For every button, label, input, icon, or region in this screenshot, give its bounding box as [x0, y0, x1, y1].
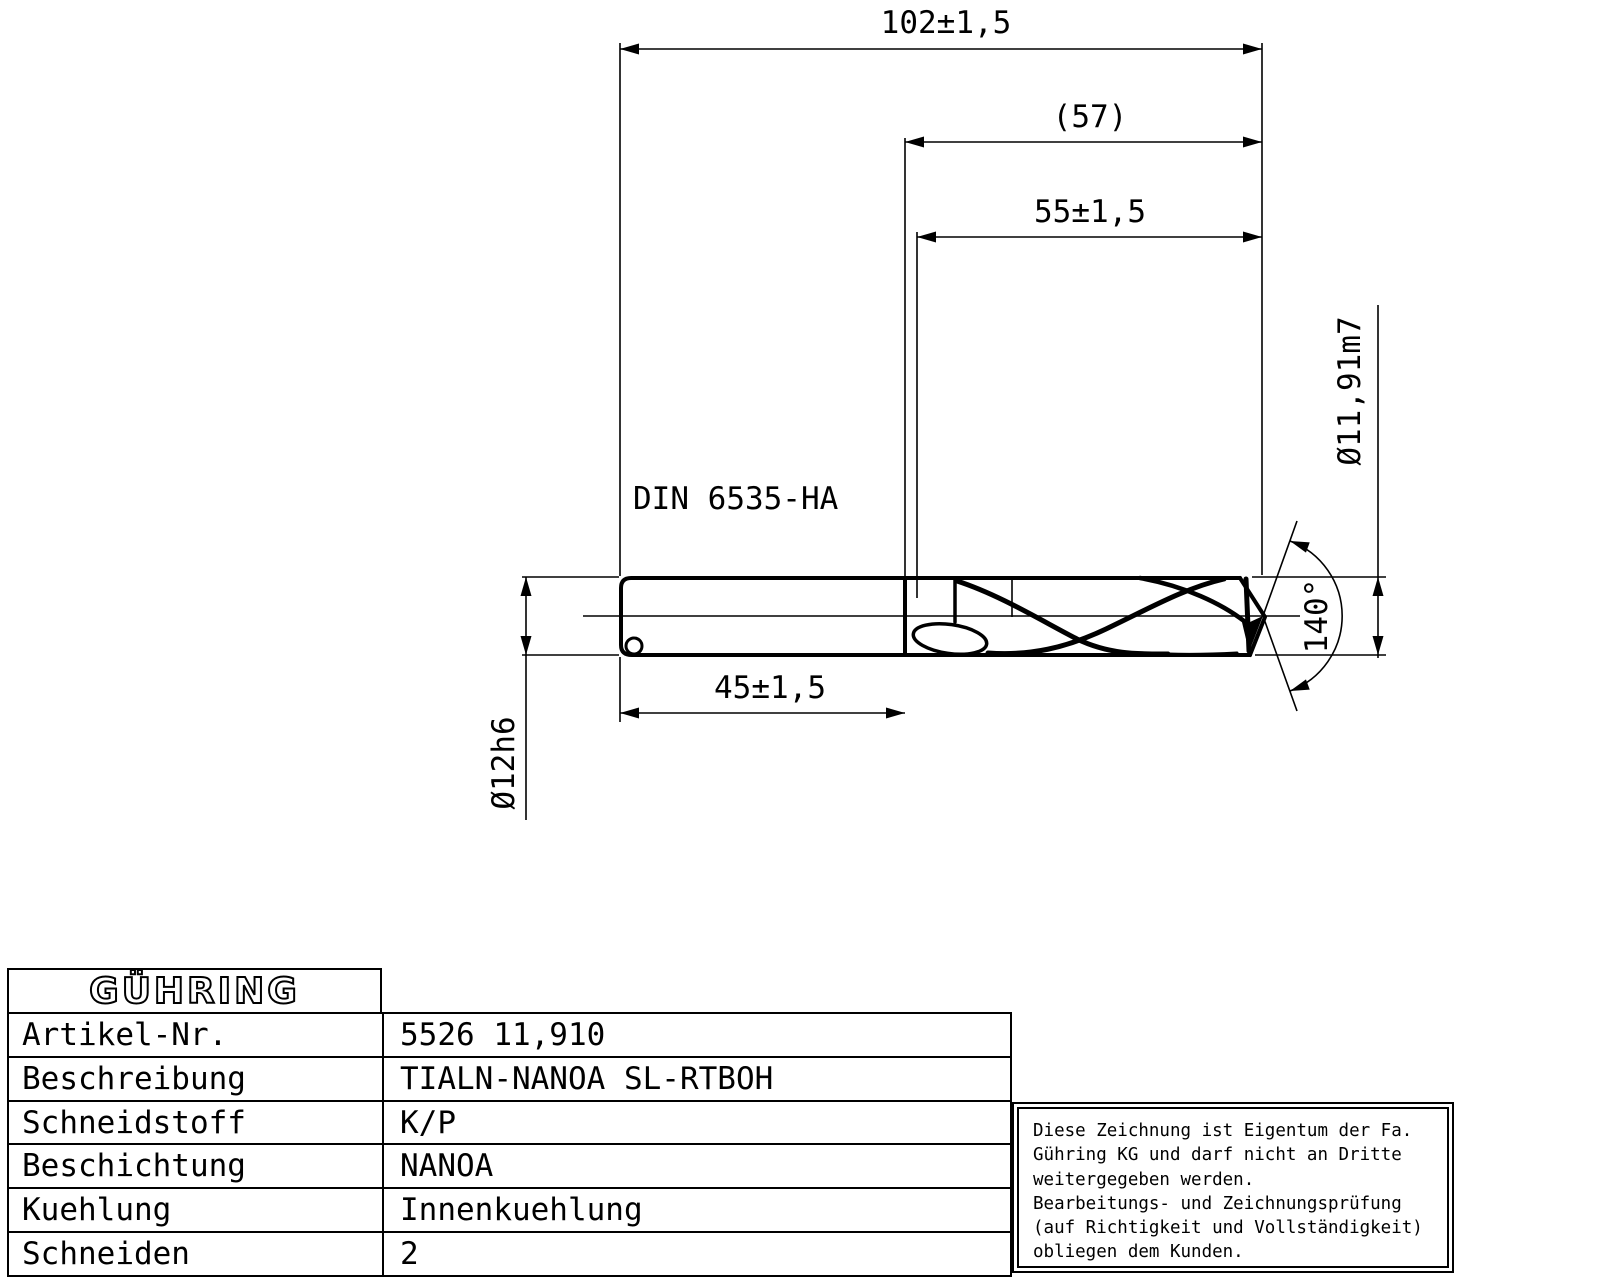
table-row: Kuehlung Innenkuehlung	[9, 1189, 1010, 1233]
notice-line: Bearbeitungs- und Zeichnungsprüfung	[1033, 1192, 1447, 1216]
row-value: 2	[382, 1236, 1010, 1272]
table-row: Beschreibung TIALN-NANOA SL-RTBOH	[9, 1058, 1010, 1102]
row-label: Schneiden	[9, 1236, 382, 1272]
flute-runout	[911, 619, 988, 658]
angle-line-upper	[1263, 521, 1297, 616]
shank-end-detail	[626, 638, 642, 654]
angle-line-lower	[1263, 616, 1297, 711]
dim-shank-length-label: 45±1,5	[670, 671, 870, 705]
din-standard-label: DIN 6535-HA	[633, 482, 838, 516]
helix-4	[1168, 653, 1237, 654]
row-label: Beschreibung	[9, 1061, 382, 1097]
notice-line: weitergegeben werden.	[1033, 1168, 1447, 1192]
dimension-lines	[522, 43, 1386, 820]
notice-line: Gühring KG und darf nicht an Dritte	[1033, 1143, 1447, 1167]
dimension-arrows	[521, 44, 1384, 719]
dim-ref-length-label: (57)	[990, 100, 1190, 134]
notice-line: obliegen dem Kunden.	[1033, 1240, 1447, 1264]
table-column-divider	[382, 1014, 384, 1275]
row-value: TIALN-NANOA SL-RTBOH	[382, 1061, 1010, 1097]
row-label: Beschichtung	[9, 1148, 382, 1184]
logo-cell: GÜHRING	[7, 968, 382, 1014]
row-value: K/P	[382, 1105, 1010, 1141]
table-row: Schneidstoff K/P	[9, 1102, 1010, 1146]
guehring-logo: GÜHRING	[89, 971, 300, 1012]
table-row: Beschichtung NANOA	[9, 1145, 1010, 1189]
dim-flute-length-label: 55±1,5	[990, 195, 1190, 229]
table-row: Schneiden 2	[9, 1233, 1010, 1275]
row-label: Kuehlung	[9, 1192, 382, 1228]
ownership-notice-box: Diese Zeichnung ist Eigentum der Fa. Güh…	[1012, 1102, 1454, 1273]
drill-side-view	[621, 578, 1265, 659]
dim-overall-length-label: 102±1,5	[846, 6, 1046, 40]
row-value: Innenkuehlung	[382, 1192, 1010, 1228]
shank-diameter-label: Ø12h6	[484, 703, 524, 823]
title-block-table: Artikel-Nr. 5526 11,910 Beschreibung TIA…	[7, 1012, 1012, 1277]
notice-inner-border: Diese Zeichnung ist Eigentum der Fa. Güh…	[1017, 1107, 1449, 1268]
technical-drawing-page: 102±1,5 (57) 55±1,5 45±1,5 DIN 6535-HA Ø…	[0, 0, 1600, 1280]
notice-line: Diese Zeichnung ist Eigentum der Fa.	[1033, 1119, 1447, 1143]
point-angle-label: 140°	[1297, 566, 1337, 666]
notice-text: Diese Zeichnung ist Eigentum der Fa. Güh…	[1019, 1109, 1447, 1265]
notice-line: (auf Richtigkeit und Vollständigkeit)	[1033, 1216, 1447, 1240]
row-value: 5526 11,910	[382, 1017, 1010, 1053]
row-label: Schneidstoff	[9, 1105, 382, 1141]
table-row: Artikel-Nr. 5526 11,910	[9, 1014, 1010, 1058]
row-value: NANOA	[382, 1148, 1010, 1184]
row-label: Artikel-Nr.	[9, 1017, 382, 1053]
cutting-diameter-label: Ø11,91m7	[1330, 306, 1370, 476]
